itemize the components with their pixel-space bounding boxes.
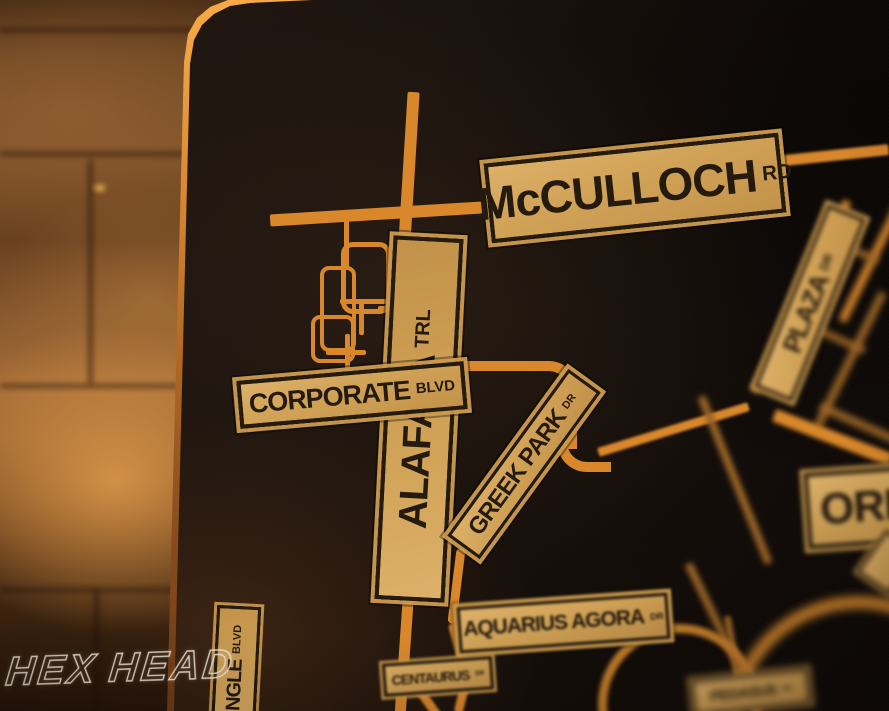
street-suffix: DR xyxy=(782,684,792,692)
street-suffix: RD xyxy=(761,160,793,187)
watermark-word: HEAD xyxy=(107,642,237,692)
road-corporate-connector xyxy=(340,299,388,304)
street-name: CORPORATE xyxy=(248,374,412,419)
street-suffix: DR xyxy=(560,392,579,412)
street-suffix: BLVD xyxy=(415,378,456,397)
street-name: CENTAURUS xyxy=(391,666,470,687)
road-plaza-south xyxy=(698,395,773,565)
hex-head-watermark-logo: HEX HEAD xyxy=(4,642,237,695)
street-suffix: DR xyxy=(650,611,664,623)
street-label-orion: ORION xyxy=(804,459,889,549)
street-suffix: DR xyxy=(475,670,485,678)
street-suffix: TRL xyxy=(411,309,436,349)
street-name: AQUARIUS AGORA xyxy=(462,605,644,642)
photo-frame: McCULLOCH RD ALAFAYA TRL CORPORATE BLVD … xyxy=(0,0,889,711)
road-corporate-connector xyxy=(345,334,350,372)
road-alafaya-north xyxy=(398,92,419,244)
street-suffix: DR xyxy=(817,252,835,273)
street-label-mcculloch: McCULLOCH RD xyxy=(484,133,787,244)
road-mcculloch-west xyxy=(270,202,482,227)
street-name: ORION xyxy=(818,476,889,536)
watermark-word: HEX xyxy=(4,647,100,695)
street-name: PLAZA xyxy=(776,270,835,357)
street-map-artwork: McCULLOCH RD ALAFAYA TRL CORPORATE BLVD … xyxy=(0,0,889,711)
street-name: PEGASUS xyxy=(709,681,777,705)
road-mcculloch-east xyxy=(776,144,889,167)
street-name: McCULLOCH xyxy=(475,148,759,231)
street-label-centaurus: CENTAURUS DR xyxy=(382,656,494,697)
road-corporate-connector xyxy=(359,303,364,335)
road-east-bright xyxy=(772,409,889,466)
